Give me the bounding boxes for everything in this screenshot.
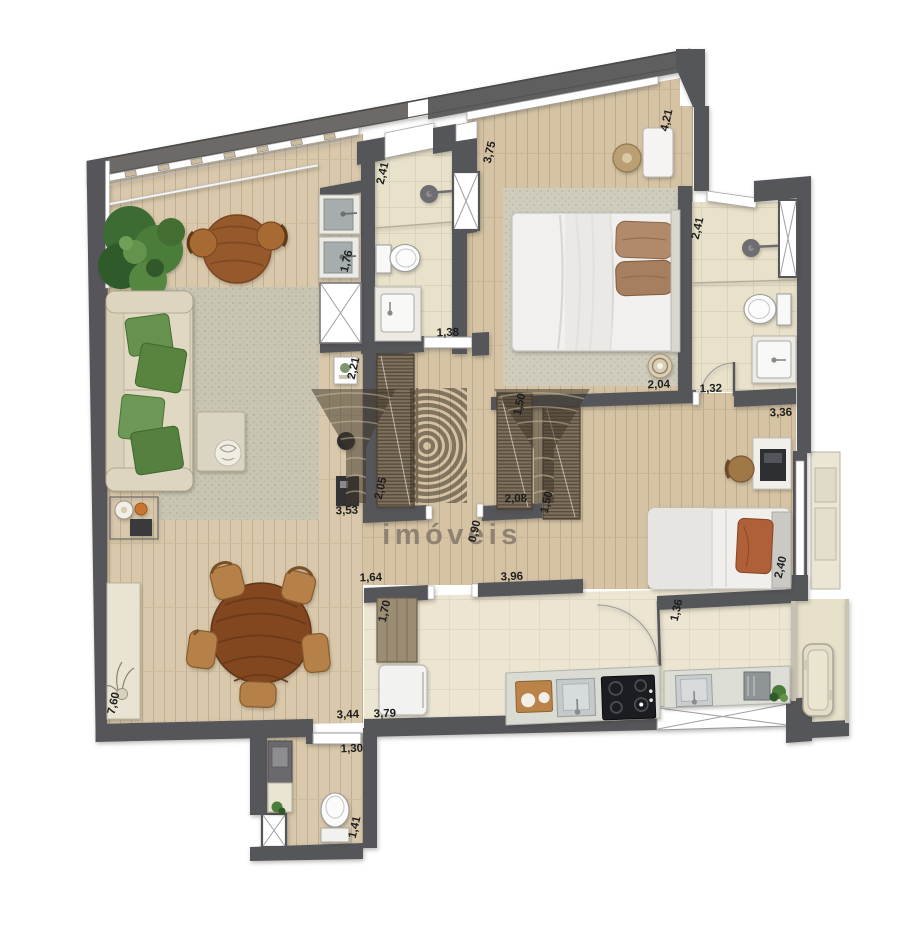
svg-text:1,30: 1,30 [340, 743, 363, 756]
svg-text:2,04: 2,04 [647, 379, 670, 392]
svg-text:3,36: 3,36 [769, 407, 792, 420]
svg-text:3,96: 3,96 [500, 571, 523, 584]
svg-text:1,64: 1,64 [359, 572, 382, 585]
svg-text:3,53: 3,53 [335, 505, 358, 518]
svg-text:1,32: 1,32 [699, 383, 722, 396]
svg-text:3,79: 3,79 [373, 708, 396, 721]
svg-text:imóveis: imóveis [382, 519, 522, 551]
svg-text:1,38: 1,38 [436, 327, 459, 340]
svg-text:3,44: 3,44 [336, 709, 359, 722]
svg-text:2,08: 2,08 [504, 493, 527, 506]
